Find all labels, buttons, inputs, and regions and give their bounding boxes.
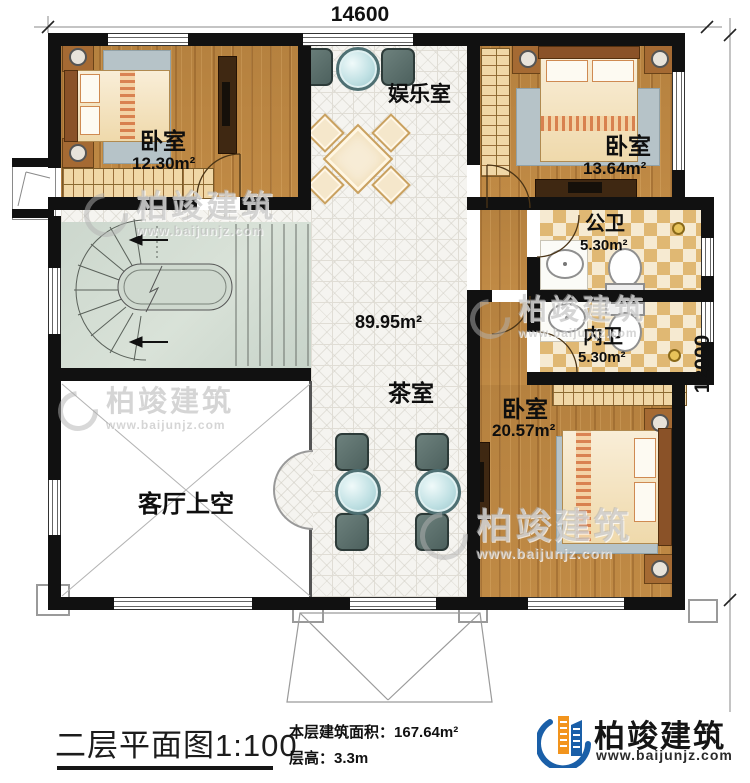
plan-title-text: 二层平面图 bbox=[55, 728, 215, 763]
wall bbox=[672, 33, 685, 72]
floor-area-value: 167.64m² bbox=[394, 724, 458, 741]
dimension-height: 12000 bbox=[691, 319, 715, 409]
corridor-floor bbox=[480, 210, 527, 290]
wall bbox=[48, 197, 197, 210]
wall bbox=[48, 368, 311, 381]
bedroom1-label: 卧室 bbox=[140, 129, 186, 153]
pillow bbox=[546, 60, 588, 82]
toilet bbox=[608, 248, 642, 288]
chair bbox=[381, 48, 415, 86]
bedroom2-label: 卧室 bbox=[605, 134, 651, 158]
laptop-icon bbox=[568, 182, 602, 193]
bed-blanket bbox=[120, 71, 135, 139]
floor-plan-page: 卧室 12.30m² 娱乐室 卧室 13.64m² 公卫 5.30m² 内卫 5… bbox=[0, 0, 750, 783]
sink bbox=[546, 249, 584, 279]
bedroom3-entry-floor bbox=[480, 302, 527, 397]
window bbox=[701, 238, 714, 276]
void-edge bbox=[309, 381, 312, 450]
brand-website: www.baijunjz.com bbox=[596, 747, 733, 763]
dimension-width: 14600 bbox=[310, 3, 410, 27]
floor-area-label: 本层建筑面积： bbox=[289, 724, 394, 741]
wall bbox=[624, 597, 685, 610]
pillow bbox=[634, 438, 656, 478]
window bbox=[108, 33, 188, 46]
window bbox=[48, 480, 61, 535]
void-edge bbox=[309, 526, 312, 597]
public-bath-label: 公卫 bbox=[585, 214, 625, 235]
wall bbox=[48, 216, 61, 268]
tv-icon bbox=[222, 82, 230, 126]
floor-height-label: 层高： bbox=[289, 750, 334, 767]
wall bbox=[527, 372, 714, 385]
chair bbox=[335, 513, 369, 551]
wall bbox=[467, 197, 712, 210]
sink bbox=[548, 303, 586, 333]
bed-headboard bbox=[64, 70, 78, 142]
wall bbox=[701, 210, 714, 238]
bed-headboard bbox=[538, 46, 640, 59]
window bbox=[303, 33, 413, 46]
window bbox=[528, 597, 624, 610]
plan-title: 二层平面图1:100 bbox=[55, 720, 298, 765]
pier bbox=[688, 599, 718, 623]
staircase-area bbox=[61, 222, 311, 368]
entertainment-label: 娱乐室 bbox=[388, 84, 451, 106]
wall bbox=[48, 33, 61, 168]
floor-area-stat: 本层建筑面积：167.64m² bbox=[289, 721, 458, 742]
shower-head-icon bbox=[668, 349, 681, 362]
wall bbox=[48, 597, 114, 610]
chair bbox=[415, 513, 449, 551]
plan-scale: 1:100 bbox=[215, 728, 298, 763]
window bbox=[114, 597, 252, 610]
hall-area: 89.95m² bbox=[355, 313, 422, 332]
wall bbox=[240, 197, 311, 210]
bedroom2-area: 13.64m² bbox=[583, 160, 646, 178]
pillow bbox=[80, 74, 100, 103]
chair bbox=[335, 433, 369, 471]
bed-blanket bbox=[576, 431, 591, 541]
wall bbox=[188, 33, 303, 46]
window bbox=[48, 268, 61, 334]
tea-room-label: 茶室 bbox=[388, 381, 434, 405]
wall bbox=[672, 385, 685, 610]
window bbox=[672, 72, 685, 170]
window bbox=[350, 597, 436, 610]
chair bbox=[415, 433, 449, 471]
wall bbox=[436, 597, 528, 610]
pillow bbox=[634, 482, 656, 522]
title-underline bbox=[57, 766, 273, 770]
bedroom3-label: 卧室 bbox=[502, 397, 548, 421]
shower-head-icon bbox=[672, 222, 685, 235]
brand-logo-icon bbox=[537, 710, 591, 768]
public-bath-area: 5.30m² bbox=[580, 238, 628, 254]
wall bbox=[467, 290, 492, 302]
lamp-icon bbox=[69, 144, 87, 162]
lamp-icon bbox=[651, 560, 669, 578]
tea-table bbox=[335, 469, 381, 515]
wall bbox=[298, 33, 311, 210]
lamp-icon bbox=[651, 50, 669, 68]
lamp-icon bbox=[519, 50, 537, 68]
floor-height-value: 3.3m bbox=[334, 750, 368, 767]
pillow bbox=[592, 60, 634, 82]
tea-table bbox=[415, 469, 461, 515]
round-table bbox=[336, 47, 380, 91]
pillow bbox=[80, 106, 100, 135]
wall bbox=[48, 33, 108, 46]
floor-height-stat: 层高：3.3m bbox=[289, 747, 368, 768]
wall bbox=[467, 33, 480, 165]
wall bbox=[252, 597, 350, 610]
private-bath-label: 内卫 bbox=[583, 327, 623, 348]
wall bbox=[413, 33, 685, 46]
living-void-label: 客厅上空 bbox=[138, 492, 234, 517]
wall bbox=[535, 290, 714, 302]
wall bbox=[48, 334, 61, 480]
private-bath-area: 5.30m² bbox=[578, 350, 626, 366]
bedroom3-area: 20.57m² bbox=[492, 422, 555, 440]
bed-headboard bbox=[658, 428, 672, 546]
bed-blanket bbox=[541, 116, 635, 131]
wardrobe bbox=[481, 48, 510, 177]
wall bbox=[467, 290, 480, 600]
bedroom1-area: 12.30m² bbox=[132, 155, 195, 173]
lamp-icon bbox=[69, 48, 87, 66]
entry-canopy bbox=[287, 613, 492, 702]
